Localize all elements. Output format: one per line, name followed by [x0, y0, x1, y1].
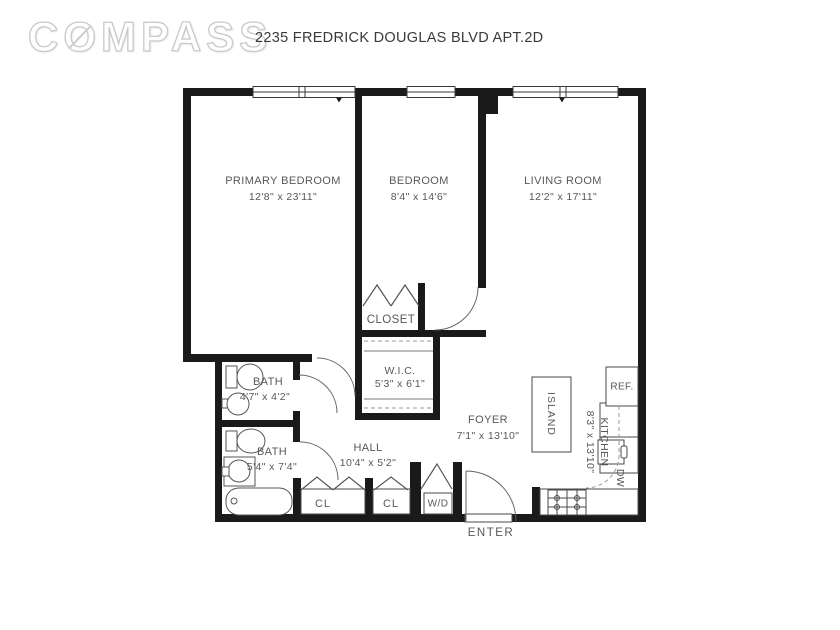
room-label-wic: W.I.C.	[385, 365, 416, 377]
primary-bedroom-door	[317, 358, 355, 396]
room-dims-wic: 5'3" x 6'1"	[375, 378, 425, 390]
toilet-upper-tank	[226, 366, 237, 388]
room-dims-bath-lower: 5'4" x 7'4"	[247, 461, 297, 473]
room-label-hall: HALL	[353, 442, 382, 454]
kitchen-faucet	[621, 446, 627, 458]
room-label-bath-upper: BATH	[253, 376, 283, 388]
room-dims-hall: 10'4" x 5'2"	[340, 457, 397, 469]
room-label-bedroom: BEDROOM	[389, 175, 449, 187]
stove	[548, 490, 586, 515]
room-dims-bath-upper: 4'7" x 4'2"	[240, 391, 290, 403]
enter-label: ENTER	[468, 527, 514, 539]
room-label-island: ISLAND	[545, 392, 557, 436]
closet2-label: CL	[383, 498, 399, 510]
tub-faucet	[231, 498, 237, 504]
room-label-primary-bedroom: PRIMARY BEDROOM	[225, 175, 341, 187]
bath-lower-door	[300, 442, 338, 480]
kitchen-name: KITCHEN	[597, 411, 611, 474]
entry-threshold	[465, 514, 512, 522]
room-dims-bedroom: 8'4" x 14'6"	[391, 191, 448, 203]
room-label-living-room: LIVING ROOM	[524, 175, 602, 187]
room-dims-foyer: 7'1" x 13'10"	[457, 430, 520, 442]
room-dims-primary-bedroom: 12'8" x 23'11"	[249, 191, 317, 203]
room-label-closet: CLOSET	[367, 314, 415, 326]
sink-lower-tap	[222, 467, 229, 476]
kitchen-dims: 8'3" x 13'10"	[583, 411, 597, 474]
room-label-bath-lower: BATH	[257, 446, 287, 458]
washer-dryer-label: W/D	[428, 499, 449, 510]
dishwasher-label: DW	[614, 469, 626, 487]
floor-plan-page: COMPASS 2235 FREDRICK DOUGLAS BLVD APT.2…	[0, 0, 840, 630]
floorplan-linework	[0, 0, 840, 630]
window-ticks	[336, 98, 565, 103]
bath-upper-door	[299, 375, 337, 413]
bedroom-door	[435, 287, 478, 330]
closet1-label: CL	[315, 498, 331, 510]
refrigerator-label: REF.	[610, 382, 633, 393]
room-dims-living-room: 12'2" x 17'11"	[529, 191, 597, 203]
floor-plan: PRIMARY BEDROOM 12'8" x 23'11" BEDROOM 8…	[0, 0, 840, 630]
toilet-lower-tank	[226, 431, 237, 451]
windows	[253, 87, 618, 98]
room-label-foyer: FOYER	[468, 414, 508, 426]
room-label-kitchen: KITCHEN 8'3" x 13'10"	[583, 411, 611, 474]
closet1-box	[301, 489, 365, 514]
